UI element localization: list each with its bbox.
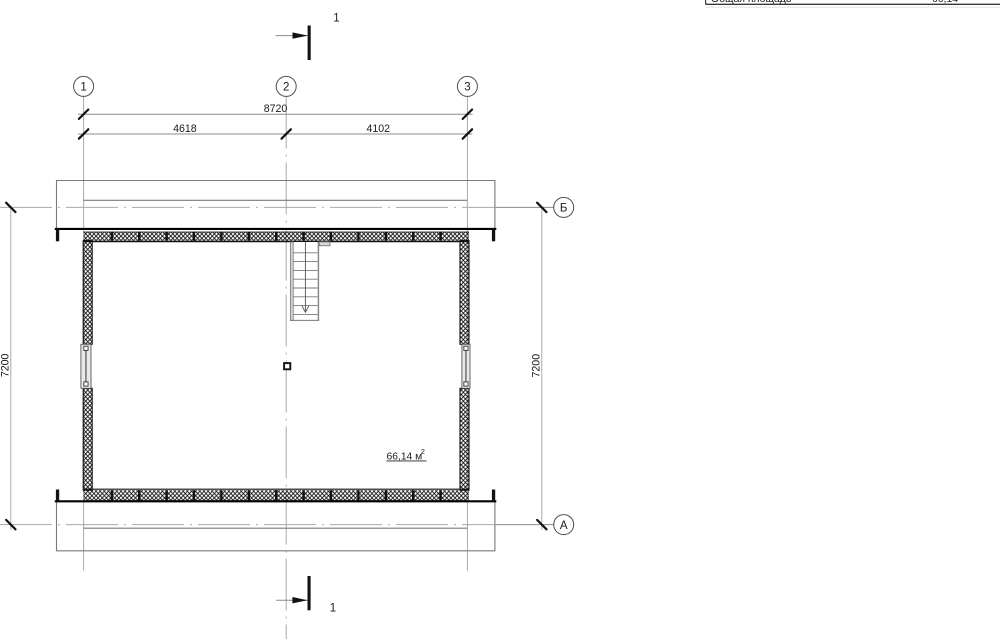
svg-text:1: 1 (330, 603, 336, 615)
svg-text:2: 2 (421, 447, 425, 456)
svg-text:Б: Б (560, 203, 568, 215)
svg-text:Общая площадь: Общая площадь (711, 0, 791, 5)
svg-text:1: 1 (80, 82, 86, 94)
svg-text:8720: 8720 (264, 103, 288, 115)
svg-text:4618: 4618 (173, 123, 197, 135)
svg-text:4102: 4102 (367, 123, 391, 135)
svg-text:66,14: 66,14 (932, 0, 958, 5)
svg-text:3: 3 (464, 82, 470, 94)
svg-text:А: А (560, 520, 568, 532)
svg-text:2: 2 (283, 82, 289, 94)
svg-text:1: 1 (333, 13, 339, 25)
svg-text:7200: 7200 (0, 354, 12, 378)
svg-text:7200: 7200 (530, 354, 542, 378)
